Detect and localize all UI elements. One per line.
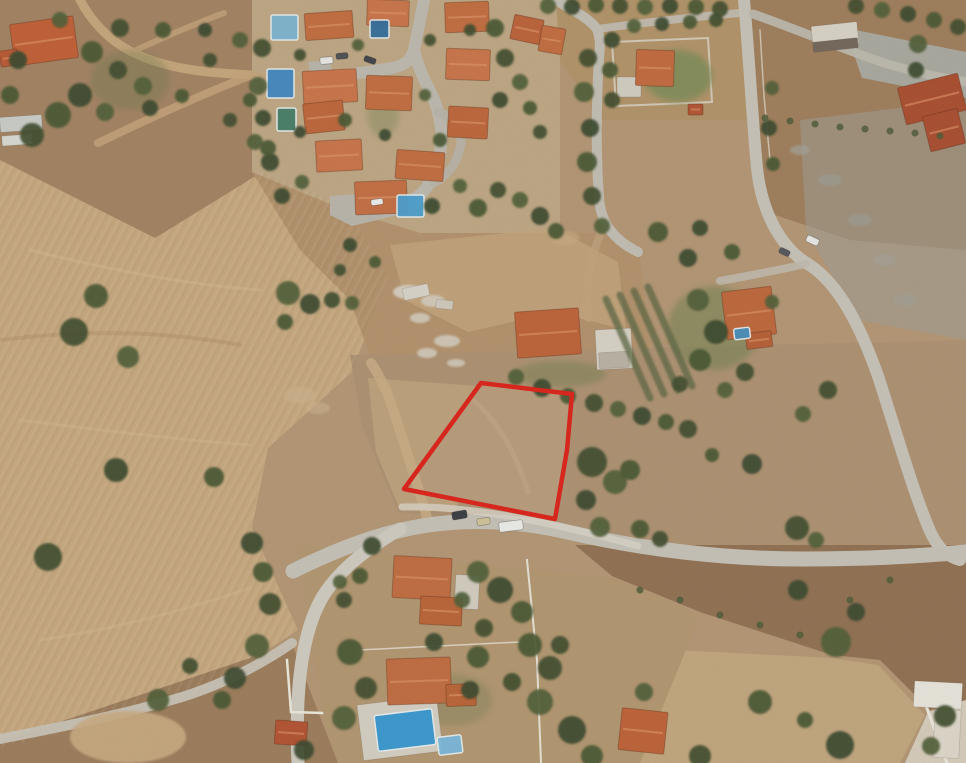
satellite-screenshot xyxy=(0,0,966,763)
photo-grain-texture xyxy=(0,0,966,763)
satellite-aerial-view xyxy=(0,0,966,763)
